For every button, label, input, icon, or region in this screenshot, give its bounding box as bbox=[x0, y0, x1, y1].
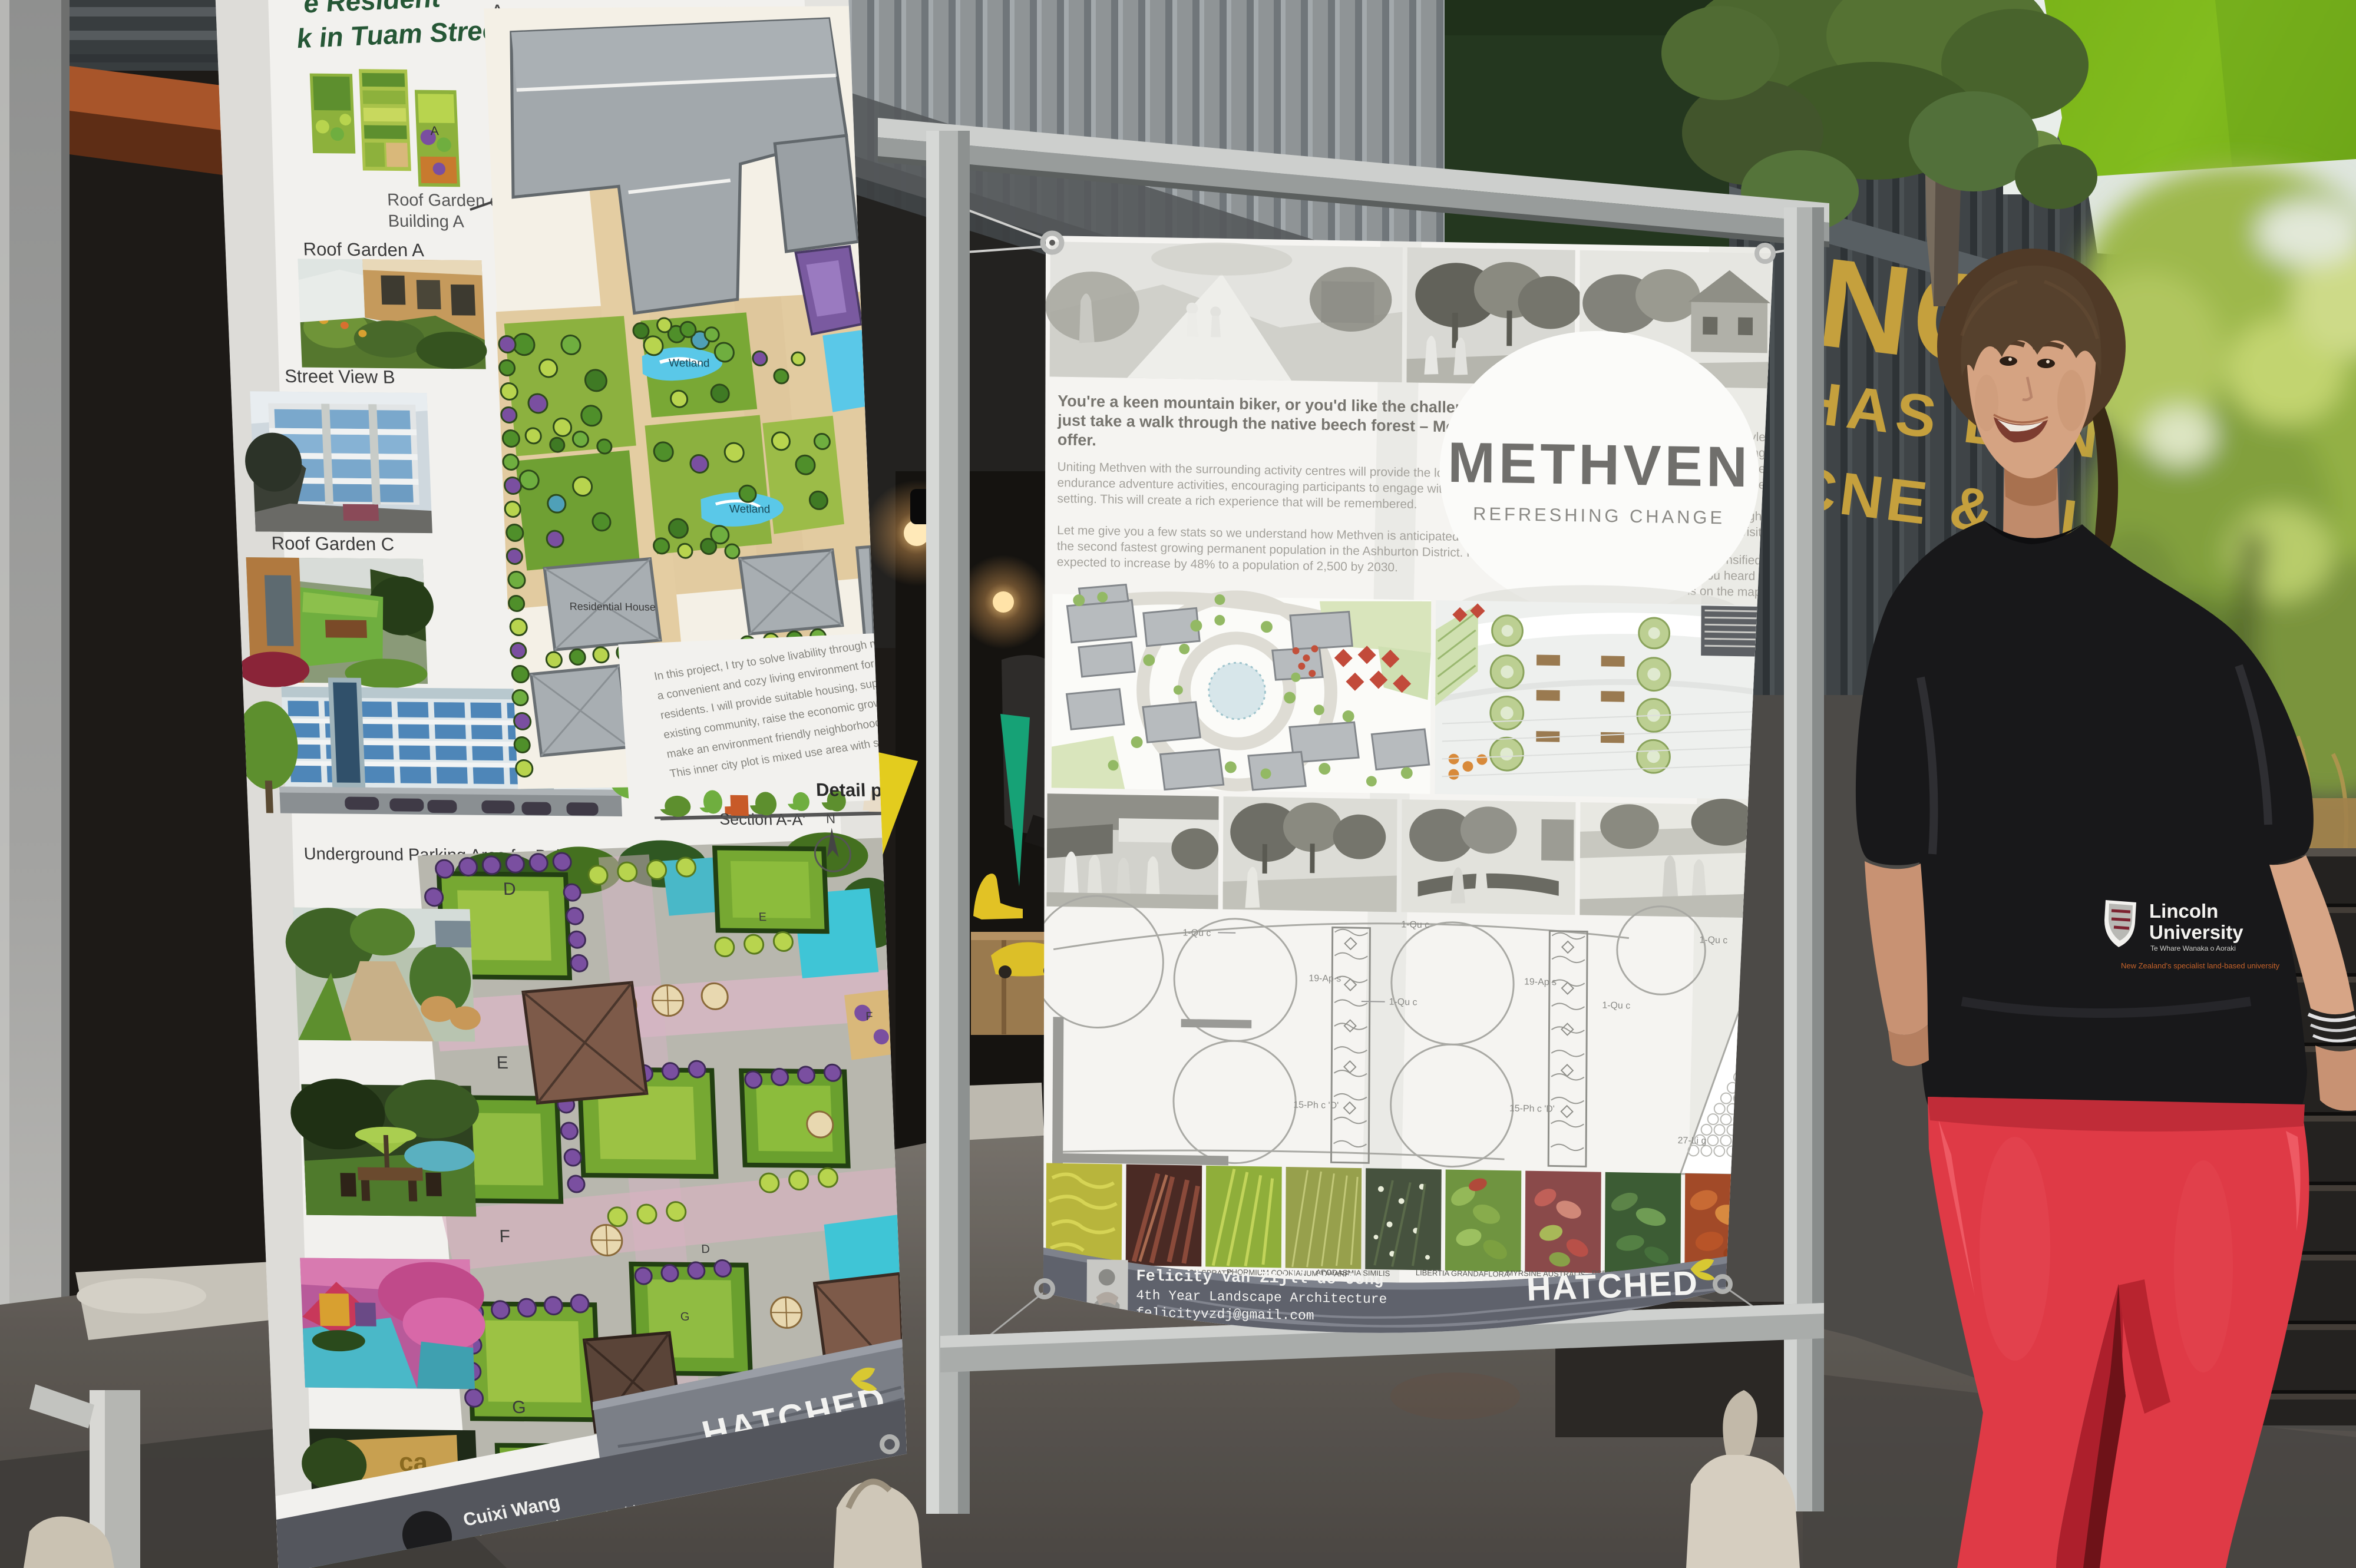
svg-text:A: A bbox=[430, 124, 440, 138]
svg-text:METHVEN: METHVEN bbox=[1448, 431, 1751, 499]
svg-text:N: N bbox=[826, 811, 836, 826]
svg-text:Wetland: Wetland bbox=[669, 357, 710, 370]
svg-text:University: University bbox=[2149, 921, 2243, 943]
svg-text:15-Ph c 'D': 15-Ph c 'D' bbox=[1293, 1100, 1339, 1111]
svg-text:E: E bbox=[496, 1053, 508, 1073]
svg-text:Street View B: Street View B bbox=[285, 366, 396, 388]
svg-text:1-Qu c: 1-Qu c bbox=[1389, 997, 1417, 1008]
svg-text:G: G bbox=[680, 1311, 690, 1324]
svg-text:offer.: offer. bbox=[1058, 431, 1096, 449]
svg-text:E: E bbox=[758, 911, 766, 924]
svg-text:Te Whare Wanaka o Aoraki: Te Whare Wanaka o Aoraki bbox=[2150, 944, 2236, 952]
svg-text:Residential House: Residential House bbox=[569, 600, 656, 613]
svg-text:New Zealand's specialist land-: New Zealand's specialist land-based univ… bbox=[2121, 961, 2280, 970]
svg-text:1-Qu c: 1-Qu c bbox=[1401, 919, 1429, 930]
svg-text:REFRESHING CHANGE: REFRESHING CHANGE bbox=[1473, 503, 1725, 528]
svg-text:F: F bbox=[499, 1227, 511, 1246]
svg-text:D: D bbox=[503, 879, 516, 899]
svg-text:19-Ap s: 19-Ap s bbox=[1308, 974, 1341, 984]
svg-text:Roof Garden of: Roof Garden of bbox=[387, 191, 505, 211]
svg-text:Roof Garden C: Roof Garden C bbox=[271, 533, 395, 555]
svg-text:27-Li g: 27-Li g bbox=[1678, 1136, 1707, 1146]
svg-text:Roof Garden A: Roof Garden A bbox=[303, 239, 425, 260]
svg-text:1-Qu c: 1-Qu c bbox=[1699, 935, 1727, 946]
svg-text:LIBERTIA GRANDAFLORA: LIBERTIA GRANDAFLORA bbox=[1416, 1268, 1509, 1279]
svg-text:1-Qu c: 1-Qu c bbox=[1602, 1001, 1630, 1011]
svg-text:G: G bbox=[512, 1398, 527, 1417]
svg-text:1-Qu c: 1-Qu c bbox=[1182, 928, 1211, 938]
svg-text:15-Ph c 'D': 15-Ph c 'D' bbox=[1509, 1103, 1555, 1114]
svg-text:19-Ap s: 19-Ap s bbox=[1524, 977, 1557, 988]
svg-text:Wetland: Wetland bbox=[729, 503, 771, 516]
svg-text:D: D bbox=[701, 1243, 710, 1256]
svg-text:Building A: Building A bbox=[388, 212, 465, 231]
svg-text:Lincoln: Lincoln bbox=[2149, 900, 2218, 922]
svg-text:F: F bbox=[865, 1010, 873, 1023]
